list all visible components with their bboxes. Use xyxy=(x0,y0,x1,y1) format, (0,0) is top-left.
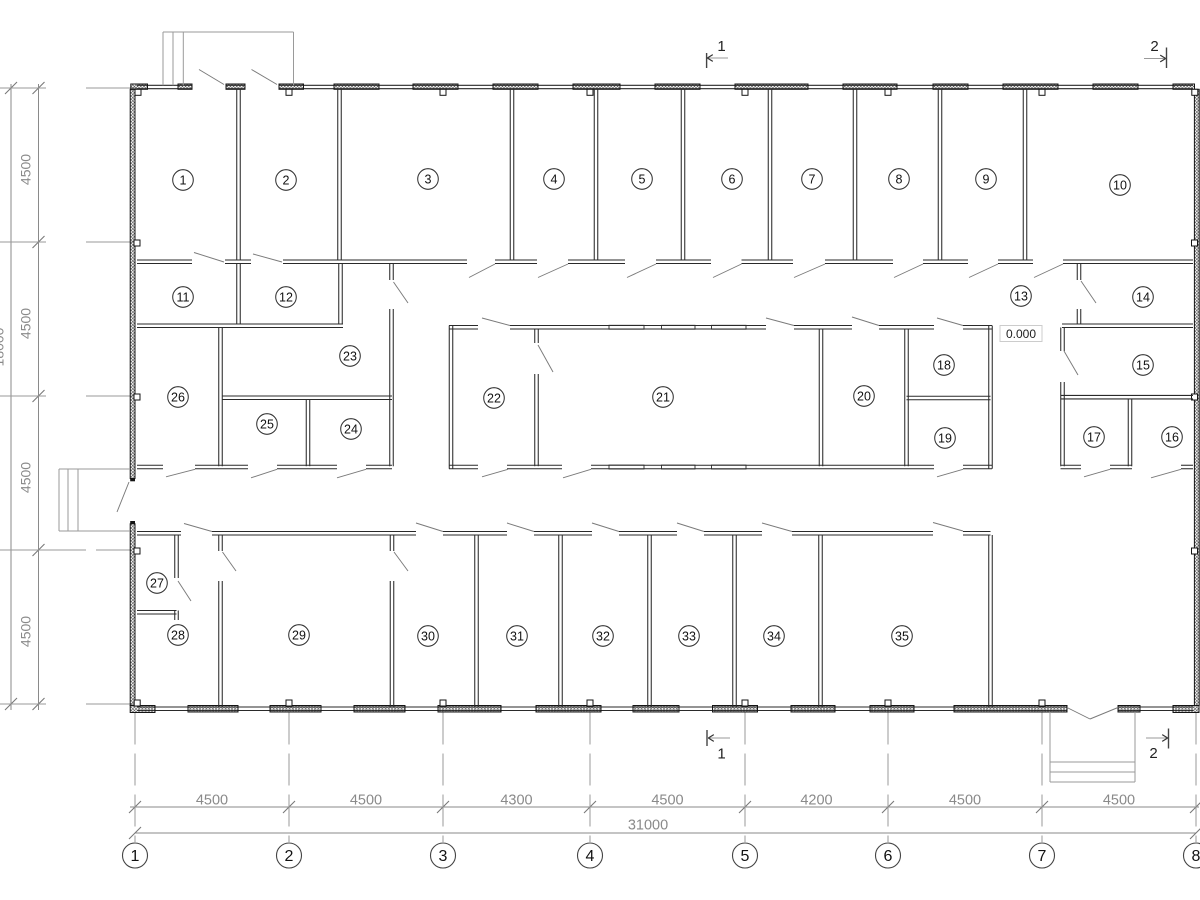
svg-text:1: 1 xyxy=(131,848,140,865)
svg-text:19: 19 xyxy=(938,432,952,446)
svg-text:11: 11 xyxy=(177,291,190,305)
svg-text:3: 3 xyxy=(439,848,448,865)
svg-text:17: 17 xyxy=(1087,431,1101,445)
svg-text:2: 2 xyxy=(1149,745,1157,762)
svg-text:6: 6 xyxy=(884,848,893,865)
svg-text:7: 7 xyxy=(1038,848,1047,865)
svg-text:24: 24 xyxy=(344,423,358,437)
svg-text:28: 28 xyxy=(171,629,185,643)
svg-text:15: 15 xyxy=(1136,359,1150,373)
svg-text:18: 18 xyxy=(937,359,951,373)
svg-text:8: 8 xyxy=(1192,848,1200,865)
svg-text:9: 9 xyxy=(983,173,990,187)
svg-text:4500: 4500 xyxy=(196,793,228,809)
svg-text:3: 3 xyxy=(425,173,432,187)
svg-text:1: 1 xyxy=(180,174,187,188)
svg-text:4500: 4500 xyxy=(18,154,34,185)
svg-text:16: 16 xyxy=(1165,431,1179,445)
svg-text:5: 5 xyxy=(741,848,750,865)
svg-text:0.000: 0.000 xyxy=(1006,327,1036,341)
svg-text:10: 10 xyxy=(1113,179,1127,193)
svg-text:7: 7 xyxy=(809,173,816,187)
svg-text:4500: 4500 xyxy=(350,793,382,809)
svg-text:12: 12 xyxy=(279,291,293,305)
svg-text:31: 31 xyxy=(510,630,524,644)
svg-text:30: 30 xyxy=(421,630,435,644)
svg-text:27: 27 xyxy=(150,577,164,591)
svg-text:13: 13 xyxy=(1014,290,1028,304)
svg-text:4500: 4500 xyxy=(651,793,683,809)
svg-text:1: 1 xyxy=(717,746,725,763)
svg-text:34: 34 xyxy=(767,630,781,644)
svg-text:4300: 4300 xyxy=(500,793,532,809)
svg-text:25: 25 xyxy=(260,418,274,432)
svg-text:14: 14 xyxy=(1136,291,1150,305)
svg-text:4500: 4500 xyxy=(18,616,34,647)
svg-text:8: 8 xyxy=(896,173,903,187)
svg-text:1: 1 xyxy=(717,38,725,55)
svg-text:31000: 31000 xyxy=(628,818,668,834)
svg-text:26: 26 xyxy=(171,391,185,405)
svg-text:2: 2 xyxy=(285,848,294,865)
svg-text:4500: 4500 xyxy=(18,462,34,493)
svg-text:4500: 4500 xyxy=(1103,793,1135,809)
svg-text:18000: 18000 xyxy=(0,327,7,366)
svg-text:32: 32 xyxy=(596,630,610,644)
svg-text:29: 29 xyxy=(292,629,306,643)
svg-text:2: 2 xyxy=(1150,38,1158,55)
svg-text:5: 5 xyxy=(639,173,646,187)
svg-text:4: 4 xyxy=(551,173,558,187)
svg-text:23: 23 xyxy=(343,350,357,364)
svg-text:4200: 4200 xyxy=(800,793,832,809)
svg-text:6: 6 xyxy=(729,173,736,187)
svg-text:2: 2 xyxy=(283,174,290,188)
svg-text:35: 35 xyxy=(895,630,909,644)
svg-text:33: 33 xyxy=(682,630,696,644)
svg-text:20: 20 xyxy=(857,390,871,404)
svg-text:4500: 4500 xyxy=(18,308,34,339)
svg-text:4500: 4500 xyxy=(949,793,981,809)
svg-text:21: 21 xyxy=(656,391,670,405)
svg-text:4: 4 xyxy=(586,848,595,865)
svg-text:22: 22 xyxy=(487,392,501,406)
